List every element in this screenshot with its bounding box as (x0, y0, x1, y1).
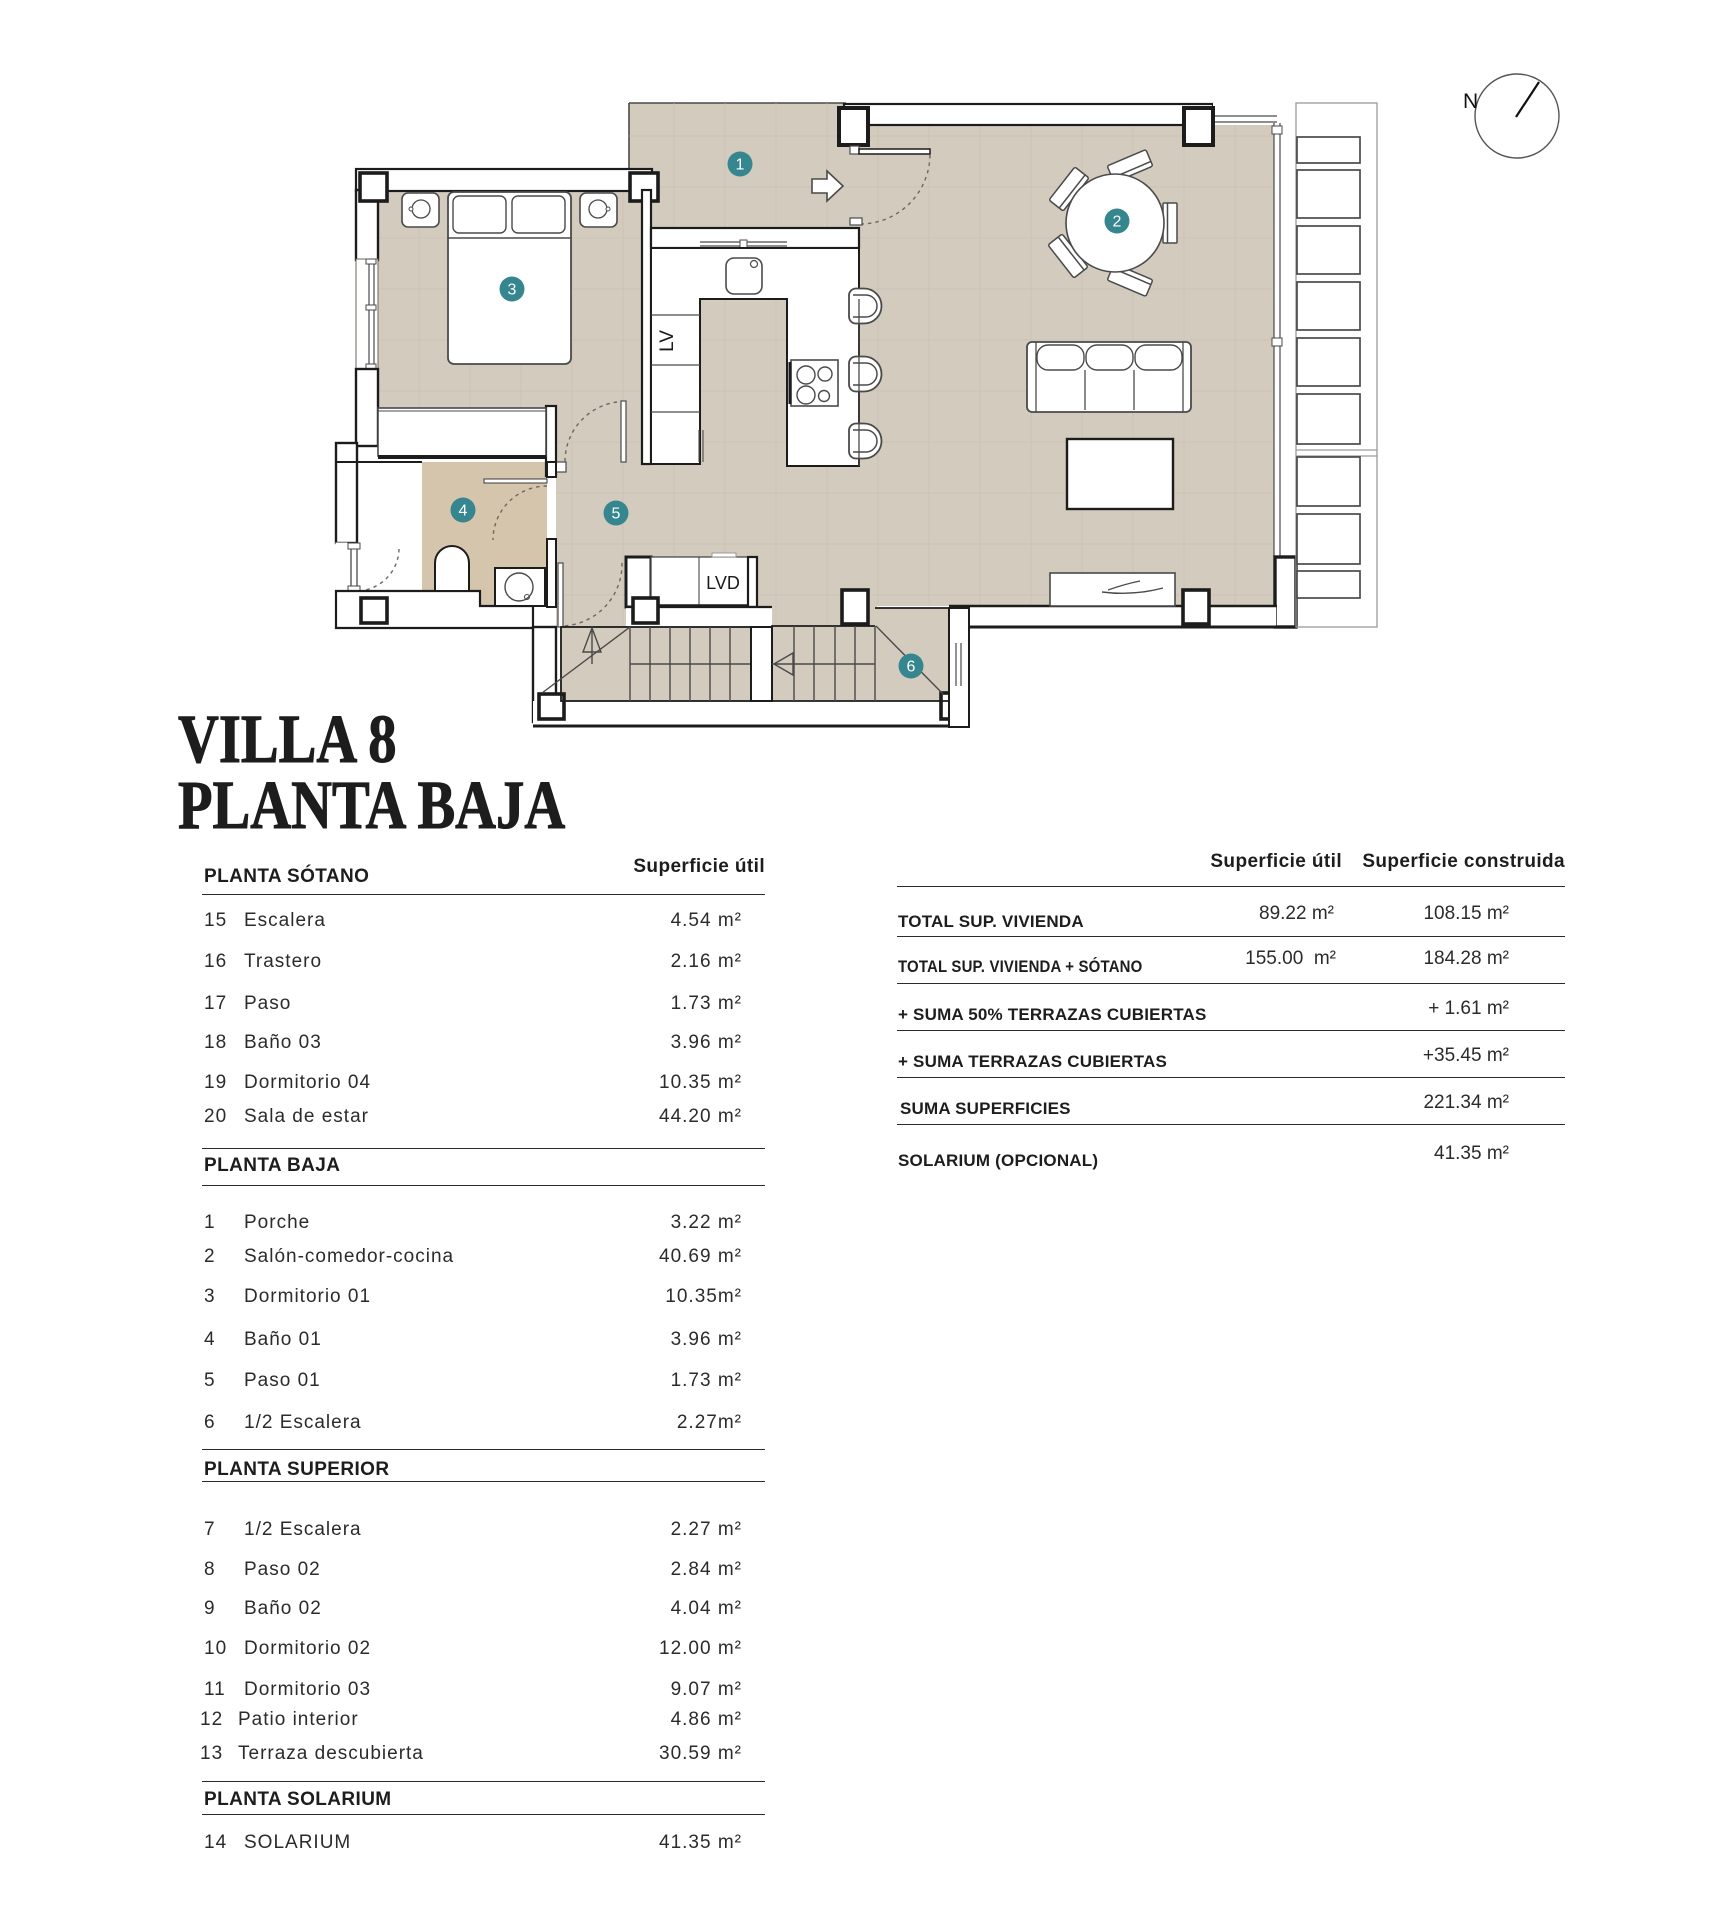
svg-text:5: 5 (612, 506, 621, 523)
svg-text:LVD: LVD (706, 573, 740, 593)
svg-text:3: 3 (508, 282, 517, 299)
svg-text:1: 1 (736, 157, 745, 174)
svg-text:N: N (1463, 90, 1478, 113)
svg-text:6: 6 (907, 659, 916, 676)
svg-text:LV: LV (657, 330, 678, 352)
svg-text:4: 4 (459, 503, 468, 520)
svg-text:2: 2 (1113, 214, 1122, 231)
